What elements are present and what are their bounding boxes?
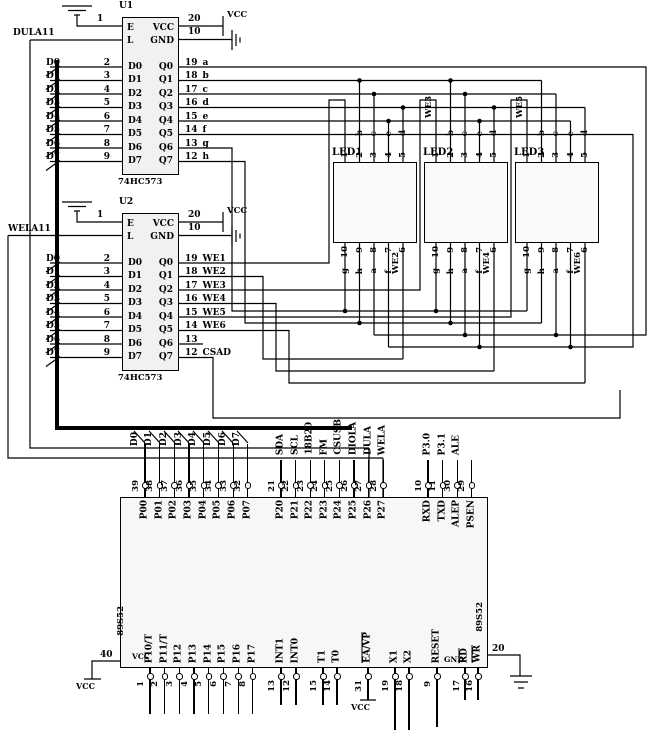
mcu-bottom-reset-port: RESET	[430, 597, 444, 666]
u1-din-label: D7	[46, 152, 60, 162]
u1-net-label: c	[203, 85, 208, 95]
pin-connector-icon	[235, 673, 242, 680]
port-label: P02	[170, 500, 179, 519]
mcu-vcc-inner-label: VCC	[132, 653, 150, 661]
led3-select-top-label: WE5	[516, 96, 525, 118]
u2-q-output: Q5	[159, 325, 173, 335]
u1-vcc-symbol-label: VCC	[227, 11, 247, 20]
pin-number: 22	[282, 480, 291, 492]
u2-net-label: WE4	[203, 294, 226, 304]
pin-connector-icon	[475, 673, 482, 680]
mcu-port-label-cell: P06	[226, 500, 241, 550]
pin-connector-icon	[469, 482, 476, 489]
u2-e-label: E	[127, 219, 134, 229]
u2-d-input: D2	[128, 285, 142, 295]
mcu-port-label-cell: INT0	[289, 597, 304, 666]
mcu-port-label-cell: INT1	[274, 597, 289, 666]
u1-d-input: D1	[128, 75, 142, 85]
display-segment-letter: a	[549, 267, 564, 291]
mcu-bottom-pin: 2	[157, 668, 172, 730]
led1-top-pin-numbers: 1 2 3 4 5	[338, 140, 411, 161]
pin-number: 14	[324, 680, 333, 692]
port-label: P20	[276, 500, 285, 519]
port-label: EA/VP	[364, 632, 373, 663]
u2-d-input: D1	[128, 271, 142, 281]
u2-ref: U2	[119, 198, 133, 207]
u1-d-input: D2	[128, 89, 142, 99]
u1-inner-rows: D0 Q0 D1 Q1 D2 Q2 D3 Q3 D4 Q4 D5 Q5 D6 Q…	[123, 60, 178, 168]
pin-number: 3	[166, 681, 175, 687]
u2-pin1-number: 1	[97, 211, 103, 220]
u1-din-label: D0	[46, 58, 60, 68]
pin-connector-icon	[206, 673, 213, 680]
u1-qout-pin-number: 17	[185, 85, 198, 95]
signal-label: SCL	[291, 435, 300, 455]
mcu-bottom-reset-pin: 9	[430, 668, 444, 729]
port-label: P05	[214, 500, 223, 519]
u1-din-pin-number: 7	[104, 125, 110, 135]
u2-d-input: D6	[128, 339, 142, 349]
bus-wire-label: D6	[219, 432, 228, 446]
mcu-port-label-cell: P07	[240, 500, 255, 550]
u1-din-pin-number: 8	[104, 139, 110, 149]
u1-din-pin-number: 3	[104, 71, 110, 81]
mcu-pin40-number: 40	[100, 651, 113, 660]
u1-din-label: D5	[46, 125, 60, 135]
u2-q-output: Q2	[159, 285, 173, 295]
pin-connector-icon	[162, 673, 169, 680]
display-segment-letter: a	[367, 267, 382, 291]
vcc-symbol-label-left: VCC	[76, 682, 95, 690]
port-label: P01	[155, 500, 164, 519]
display-pin-number: 1	[429, 140, 444, 161]
u2-l-label: L	[127, 232, 133, 242]
u1-qout-pin-number: 13	[185, 139, 198, 149]
mcu-port-label-cell: ALEP	[450, 500, 465, 552]
u1-d-input: D4	[128, 116, 142, 126]
pin-number: 37	[161, 480, 170, 492]
mcu-port-label-cell: X1	[388, 597, 402, 666]
signal-label: DIOLA	[349, 422, 358, 455]
pin-connector-icon	[176, 673, 183, 680]
u2-d-input: D4	[128, 312, 142, 322]
display-pin-number: 4	[381, 140, 396, 161]
signal-label: 18B20	[306, 422, 315, 455]
u2-net-label: WE5	[203, 308, 226, 318]
u1-din-pin-number: 4	[104, 85, 110, 95]
signal-label: P3.1	[438, 433, 447, 455]
u1-net-label: d	[203, 98, 209, 108]
port-label: P15	[219, 644, 228, 663]
pin-number: 23	[297, 480, 306, 492]
u1-inner-row: D2 Q2	[123, 87, 178, 101]
u1-net-label: h	[203, 152, 210, 162]
mcu-port-label-cell: P15	[216, 597, 231, 666]
pin-connector-icon	[434, 673, 441, 680]
mcu-port-label-cell: P27	[376, 500, 391, 550]
led3-top-segment-letters: b c e d	[534, 112, 592, 139]
display-segment-letter: d	[487, 112, 502, 139]
mcu-port-label-cell: P04	[196, 500, 211, 550]
signal-label: FM	[320, 439, 329, 455]
led2-select-top-label: WE3	[425, 96, 434, 118]
display-pin-number: 5	[578, 140, 593, 161]
mcu-bottom-ea-port: EA/VP	[361, 597, 375, 666]
u1-part-number: 74HC573	[118, 178, 162, 187]
u2-inner-row: D0 Q0	[123, 256, 178, 270]
led3-top-pin-numbers: 1 2 3 4 5	[520, 140, 593, 161]
mcu-bottom-pin: 6	[216, 668, 231, 730]
led3-bottom-segment-letters: g h a f	[520, 267, 578, 291]
pin-number: 5	[195, 681, 204, 687]
pin-number: 1	[137, 681, 146, 687]
led2-body	[424, 162, 508, 243]
u1-inner-row: D4 Q4	[123, 114, 178, 128]
u2-inner-row: D1 Q1	[123, 270, 178, 284]
pin-number: 33	[220, 480, 229, 492]
port-label: WR	[474, 645, 483, 663]
led2-bottom-segment-letters: g h a f	[429, 267, 487, 291]
pin-stub	[383, 460, 384, 497]
u1-inner-row: D3 Q3	[123, 101, 178, 115]
u1-ref: U1	[119, 2, 133, 11]
port-label: P11/T	[160, 634, 169, 663]
port-label: T1	[319, 650, 328, 663]
u1-d-input: D0	[128, 62, 142, 72]
port-label: X1	[391, 650, 400, 663]
led3-select-bottom-label: WE6	[574, 252, 583, 274]
signal-label: ALE	[453, 435, 462, 455]
u1-net-label: g	[203, 139, 209, 149]
u1-q-output: Q1	[159, 75, 173, 85]
u1-inner-row: D7 Q7	[123, 155, 178, 169]
u2-din-label: D5	[46, 321, 60, 331]
mcu-bottom-rw-pins: 17 16	[459, 668, 485, 708]
mcu-bottom-pin: 16	[472, 668, 485, 708]
pin-number: 10	[415, 480, 424, 492]
port-label: TXD	[438, 500, 447, 522]
u1-d-input: D6	[128, 143, 142, 153]
mcu-p0-pins: D0 39 D1 38 D2 37 D3 36 D4 35 D5	[138, 430, 256, 497]
u1-latch-enable-label: DULA11	[13, 29, 55, 38]
u1-d-input: D7	[128, 156, 142, 166]
port-label: P21	[291, 500, 300, 519]
u2-d-input: D3	[128, 298, 142, 308]
mcu-port-label-cell: P00	[138, 500, 153, 550]
u2-din-label: D1	[46, 267, 60, 277]
display-pin-number: 8	[549, 246, 564, 266]
u1-q-output: Q2	[159, 89, 173, 99]
u2-qout-pin-number: 16	[185, 294, 198, 304]
pin-connector-icon	[334, 673, 341, 680]
pin-number: 26	[341, 480, 350, 492]
port-label: P14	[204, 644, 213, 663]
mcu-port-label-cell: P22	[303, 500, 318, 550]
display-pin-number: 10	[338, 246, 353, 266]
pin-number: 13	[268, 680, 277, 692]
display-pin-number: 9	[443, 246, 458, 266]
u2-q-output: Q4	[159, 312, 173, 322]
mcu-port-label-cell: P16	[231, 597, 246, 666]
led1-body	[333, 162, 417, 243]
display-segment-letter: e	[381, 112, 396, 139]
u1-q-output: Q5	[159, 129, 173, 139]
pin-number: 31	[355, 680, 364, 692]
u1-qout-pin-number: 14	[185, 125, 198, 135]
port-label: P26	[364, 500, 373, 519]
u1-net-label: e	[203, 112, 209, 122]
port-label: ALEP	[453, 500, 462, 527]
pin-number: 19	[382, 680, 391, 692]
mcu-port-label-cell: T1	[316, 597, 330, 666]
u1-gnd-label: GND	[150, 36, 174, 46]
mcu-bottom-int-ports: INT1 INT0	[274, 597, 304, 666]
mcu-port-label-cell: P01	[152, 500, 167, 550]
u2-net-label: WE6	[203, 321, 226, 331]
led1-bottom-segment-letters: g h a f	[338, 267, 396, 291]
port-label: P03	[185, 500, 194, 519]
u1-inner-row: D6 Q6	[123, 141, 178, 155]
u1-right-pins: 19 a 18 b 17 c 16 d 15 e 14 f 13 g 12 h	[185, 60, 257, 168]
mcu-bottom-pin: 12	[289, 668, 304, 718]
u2-inner-row: D3 Q3	[123, 297, 178, 311]
pin-connector-icon	[220, 673, 227, 680]
u2-inner-row: D7 Q7	[123, 351, 178, 365]
u1-din-label: D1	[46, 71, 60, 81]
display-segment-letter: b	[443, 112, 458, 139]
display-segment-letter: d	[396, 112, 411, 139]
display-segment-letter: b	[352, 112, 367, 139]
mcu-port-label-cell: P13	[187, 597, 202, 666]
mcu-port-label-cell: P23	[317, 500, 332, 550]
pin-connector-icon	[462, 673, 469, 680]
u2-inner-row: D2 Q2	[123, 283, 178, 297]
mcu-port-label-cell: TXD	[435, 500, 450, 552]
pin-number: 28	[370, 480, 379, 492]
bus-wire-label: D5	[204, 432, 213, 446]
pin-connector-icon	[245, 482, 252, 489]
bus-wire-label: D1	[145, 432, 154, 446]
mcu-p2-ports: P20 P21 P22 P23 P24 P25 P26 P27	[274, 500, 391, 550]
mcu-bottom-timer-ports: T1 T0	[316, 597, 344, 666]
u1-net-label: f	[203, 125, 207, 135]
pin-number: 36	[176, 480, 185, 492]
mcu-bottom-pin: 14	[330, 668, 344, 718]
u2-left-pin-row: D7 9	[46, 351, 110, 365]
display-pin-number: 3	[549, 140, 564, 161]
display-segment-letter: h	[534, 267, 549, 291]
pin-connector-icon	[392, 673, 399, 680]
u1-qout-pin-number: 16	[185, 98, 198, 108]
port-label: P25	[349, 500, 358, 519]
display-segment-letter: e	[472, 112, 487, 139]
display-segment-letter: g	[429, 267, 444, 291]
u2-din-label: D6	[46, 335, 60, 345]
mcu-gnd-label: GND	[444, 656, 464, 664]
display-pin-number: 5	[487, 140, 502, 161]
pin-number: 32	[234, 480, 243, 492]
u2-din-pin-number: 4	[104, 281, 110, 291]
pin-number: 8	[239, 681, 248, 687]
pin-number: 7	[225, 681, 234, 687]
pin-number: 17	[453, 680, 462, 692]
pin-number: 38	[146, 480, 155, 492]
display-segment-letter: g	[520, 267, 535, 291]
u2-gnd-pin: 10	[188, 224, 201, 233]
mcu-port-label-cell: P17	[245, 597, 260, 666]
u2-vcc-pin: 20	[188, 211, 201, 220]
display-pin-number: 10	[429, 246, 444, 266]
mcu-ref-left: 89S52	[117, 606, 126, 636]
pin-connector-icon	[293, 673, 300, 680]
mcu-port-label-cell: T0	[330, 597, 344, 666]
display-segment-letter: c	[549, 112, 564, 139]
port-label: INT0	[292, 638, 301, 663]
u2-qout-pin-number: 18	[185, 267, 198, 277]
u1-left-pin-row: D7 9	[46, 155, 110, 169]
mcu-bottom-xtal-pins: 19 18	[388, 668, 416, 732]
u2-din-label: D0	[46, 254, 60, 264]
u2-din-pin-number: 5	[104, 294, 110, 304]
signal-label: WELA	[379, 425, 388, 455]
u1-right-pin-row: 12 h	[185, 155, 257, 169]
mcu-top-pin: WELA 28	[376, 430, 391, 497]
pin-stub	[247, 444, 248, 497]
pin-connector-icon	[380, 482, 387, 489]
u1-din-label: D6	[46, 139, 60, 149]
led2-top-segment-letters: b c e d	[443, 112, 501, 139]
mcu-bottom-pin: 18	[402, 668, 416, 732]
u1-d-input: D5	[128, 129, 142, 139]
mcu-bottom-p1-pins: 1 2 3 4 5 6 7 8	[143, 668, 261, 730]
display-segment-letter: h	[352, 267, 367, 291]
mcu-port-label-cell: X2	[402, 597, 416, 666]
display-segment-letter: h	[443, 267, 458, 291]
display-segment-letter: d	[578, 112, 593, 139]
mcu-bottom-xtal-ports: X1 X2	[388, 597, 416, 666]
u2-right-pin-row: 12 CSAD	[185, 351, 257, 365]
u1-q-output: Q7	[159, 156, 173, 166]
u1-q-output: Q6	[159, 143, 173, 153]
u2-qout-pin-number: 19	[185, 254, 198, 264]
pin-number: 4	[181, 681, 190, 687]
signal-label: DULA	[364, 426, 373, 455]
u2-left-pins: D0 2 D1 3 D2 4 D3 5 D4 6 D5 7 D6 8 D7 9	[46, 256, 110, 364]
signal-label: SDA	[276, 434, 285, 455]
pin-number: 35	[190, 480, 199, 492]
mcu-bottom-timer-pins: 15 14	[316, 668, 344, 718]
u2-net-label: WE2	[203, 267, 226, 277]
u2-inner-rows: D0 Q0 D1 Q1 D2 Q2 D3 Q3 D4 Q4 D5 Q5 D6 Q…	[123, 256, 178, 364]
mcu-bottom-pin: 5	[201, 668, 216, 730]
display-pin-number: 9	[352, 246, 367, 266]
port-label: P07	[243, 500, 252, 519]
u1-net-label: a	[203, 58, 209, 68]
display-pin-number: 3	[458, 140, 473, 161]
display-pin-number: 2	[443, 140, 458, 161]
u2-inner-row: D5 Q5	[123, 324, 178, 338]
u2-din-label: D7	[46, 348, 60, 358]
u2-d-input: D5	[128, 325, 142, 335]
port-label: T0	[333, 650, 342, 663]
u1-din-pin-number: 6	[104, 112, 110, 122]
u1-din-pin-number: 2	[104, 58, 110, 68]
mcu-p0-ports: P00 P01 P02 P03 P04 P05 P06 P07	[138, 500, 256, 550]
u1-vcc-label: VCC	[153, 23, 174, 33]
display-pin-number: 9	[534, 246, 549, 266]
display-pin-number: 2	[352, 140, 367, 161]
u2-net-label: CSAD	[203, 348, 231, 358]
pin-connector-icon	[365, 673, 372, 680]
pin-number: 30	[444, 480, 453, 492]
display-pin-number: 1	[520, 140, 535, 161]
led2-select-bottom-label: WE4	[483, 252, 492, 274]
display-pin-number: 3	[367, 140, 382, 161]
pin-number: 25	[326, 480, 335, 492]
pin-number: 16	[466, 680, 475, 692]
u2-qout-pin-number: 13	[185, 335, 198, 345]
u2-din-label: D4	[46, 308, 60, 318]
mcu-port-label-cell: P24	[332, 500, 347, 550]
bus-wire-label: D3	[175, 432, 184, 446]
u2-qout-pin-number: 15	[185, 308, 198, 318]
port-label: RXD	[423, 500, 432, 522]
schematic: U1 1 DULA11 20 10 VCC E VCC L GND D0 Q0 …	[0, 0, 660, 740]
mcu-port-label-cell: P11/T	[157, 597, 172, 666]
mcu-port-label-cell: P20	[274, 500, 289, 550]
mcu-pin20-number: 20	[492, 645, 505, 654]
mcu-bottom-pin: 8	[245, 668, 260, 730]
u1-qout-pin-number: 19	[185, 58, 198, 68]
u2-din-pin-number: 8	[104, 335, 110, 345]
pin-number: 18	[396, 680, 405, 692]
port-label: P22	[306, 500, 315, 519]
mcu-port-label-cell: WR	[472, 597, 485, 666]
display-segment-letter: c	[458, 112, 473, 139]
port-label: PSEN	[467, 500, 476, 528]
bus-wire-label: D0	[131, 432, 140, 446]
u2-vcc-label: VCC	[153, 219, 174, 229]
port-label: P16	[234, 644, 243, 663]
display-pin-number: 10	[520, 246, 535, 266]
display-pin-number: 4	[472, 140, 487, 161]
u1-q-output: Q3	[159, 102, 173, 112]
u1-qout-pin-number: 15	[185, 112, 198, 122]
u2-inner-row: D4 Q4	[123, 310, 178, 324]
port-label: P00	[140, 500, 149, 519]
u1-din-label: D4	[46, 112, 60, 122]
port-label: P24	[335, 500, 344, 519]
u2-din-label: D3	[46, 294, 60, 304]
pin-number: 6	[210, 681, 219, 687]
u2-q-output: Q6	[159, 339, 173, 349]
display-pin-number: 5	[396, 140, 411, 161]
pin-connector-icon	[250, 673, 257, 680]
port-label: INT1	[277, 638, 286, 663]
mcu-port-label-cell: RESET	[430, 597, 444, 666]
mcu-bottom-pin: 1	[143, 668, 158, 730]
bus-wire-label: D4	[189, 432, 198, 446]
display-segment-letter: g	[338, 267, 353, 291]
display-pin-number: 8	[367, 246, 382, 266]
pin-number: 9	[424, 681, 433, 687]
u2-din-pin-number: 9	[104, 348, 110, 358]
pin-connector-icon	[320, 673, 327, 680]
mcu-bottom-pin: 4	[187, 668, 202, 730]
u2-q-output: Q3	[159, 298, 173, 308]
mcu-p2-pins: SDA 21 SCL 22 18B20 23 FM 24 CSUSB 25 DI…	[274, 430, 391, 497]
u1-din-label: D2	[46, 85, 60, 95]
